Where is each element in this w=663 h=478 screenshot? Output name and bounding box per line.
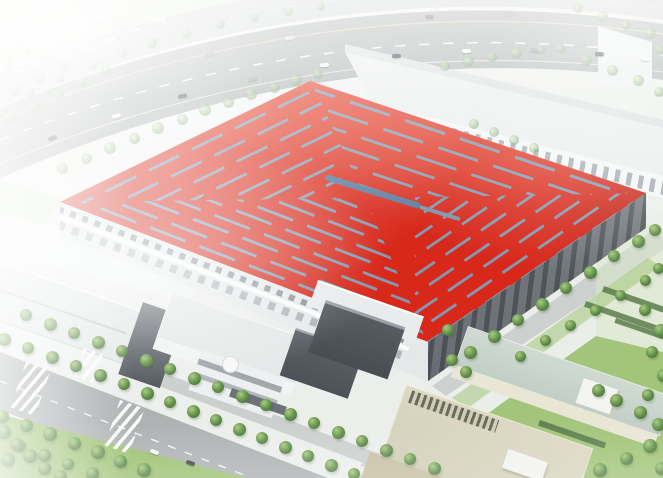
tree [573, 3, 583, 13]
tree [313, 69, 323, 79]
tree [535, 45, 545, 55]
tree [68, 437, 81, 450]
car [320, 63, 329, 68]
crosswalk [10, 362, 50, 416]
tree [620, 452, 633, 465]
tree [43, 427, 57, 441]
car [248, 76, 258, 81]
tree [565, 320, 576, 331]
tree [26, 88, 35, 97]
tree [657, 369, 663, 382]
tree [29, 101, 40, 112]
tree [38, 449, 51, 462]
bird [128, 26, 142, 34]
tree [35, 73, 45, 83]
tree [302, 450, 314, 462]
tree [653, 263, 663, 274]
tree [14, 440, 26, 452]
tree [137, 463, 151, 477]
tree [332, 426, 345, 439]
tree [269, 82, 280, 93]
tree [279, 441, 292, 454]
tree [646, 346, 658, 358]
bird [56, 20, 70, 28]
car [186, 460, 196, 467]
tree [129, 133, 140, 144]
tree [59, 61, 69, 71]
tree [62, 458, 74, 470]
car [48, 135, 58, 142]
tree [0, 425, 11, 439]
tree [152, 122, 164, 134]
tree [621, 20, 631, 30]
hedge [602, 286, 663, 313]
bird [24, 44, 38, 52]
tree [487, 52, 497, 62]
tree [3, 57, 13, 67]
tree [223, 97, 234, 108]
bird [34, 8, 48, 16]
tree [10, 438, 23, 451]
tree [177, 114, 188, 125]
car [285, 35, 294, 40]
tree [114, 455, 127, 468]
bird [32, 60, 46, 68]
field-top-left [0, 0, 250, 112]
tree [147, 38, 157, 48]
tree [540, 335, 551, 346]
tree [210, 414, 222, 426]
tree [463, 56, 474, 67]
tree [593, 463, 607, 477]
bird [14, 16, 28, 24]
tree [164, 396, 176, 408]
tree [118, 49, 127, 58]
car [150, 449, 160, 456]
tree [54, 470, 67, 478]
tree [9, 85, 20, 96]
tree [38, 462, 51, 475]
tree [23, 449, 37, 463]
bird [92, 14, 106, 22]
tree [22, 46, 31, 55]
tree [316, 2, 325, 11]
crosswalk [104, 400, 144, 454]
tree [290, 74, 302, 86]
tree [53, 89, 64, 100]
tree [1, 453, 15, 467]
tree [245, 88, 257, 100]
aerial-rendering [0, 0, 663, 478]
tree [87, 60, 97, 70]
tree [356, 435, 368, 447]
highway-upper-center-line [0, 0, 663, 88]
car [205, 51, 215, 57]
car [462, 49, 471, 53]
tree [597, 11, 608, 22]
tree [654, 87, 663, 97]
tree [581, 55, 592, 66]
tree [655, 462, 663, 475]
tree [4, 112, 16, 124]
bird [57, 52, 71, 60]
tree [77, 77, 87, 87]
tree [104, 142, 116, 154]
bird [12, 68, 26, 76]
bird [47, 36, 61, 44]
car [178, 93, 188, 99]
tree [81, 153, 92, 164]
car [112, 113, 122, 119]
car [425, 15, 434, 19]
bird [104, 36, 118, 44]
tree [57, 163, 68, 174]
tree [101, 65, 111, 75]
tree [86, 467, 99, 478]
tree [55, 73, 65, 83]
tree [325, 459, 338, 472]
bird [70, 28, 84, 36]
tree [511, 48, 522, 59]
tree [284, 7, 293, 16]
tree [199, 104, 211, 116]
tree [655, 45, 663, 55]
bird [80, 46, 94, 54]
tree [182, 29, 191, 38]
tree [256, 432, 268, 444]
tree [348, 468, 360, 478]
tree [215, 19, 225, 29]
tree [556, 44, 565, 53]
tree [308, 417, 320, 429]
tree [187, 405, 200, 418]
tree [20, 419, 33, 432]
tree [649, 224, 661, 236]
tree [233, 423, 246, 436]
car [505, 12, 514, 16]
tree [645, 28, 656, 39]
car [530, 48, 539, 52]
gate-kiosk [222, 356, 239, 373]
tree [91, 445, 105, 459]
tree [640, 275, 651, 286]
bird [152, 16, 166, 24]
tree [250, 13, 259, 22]
tree [0, 410, 9, 423]
